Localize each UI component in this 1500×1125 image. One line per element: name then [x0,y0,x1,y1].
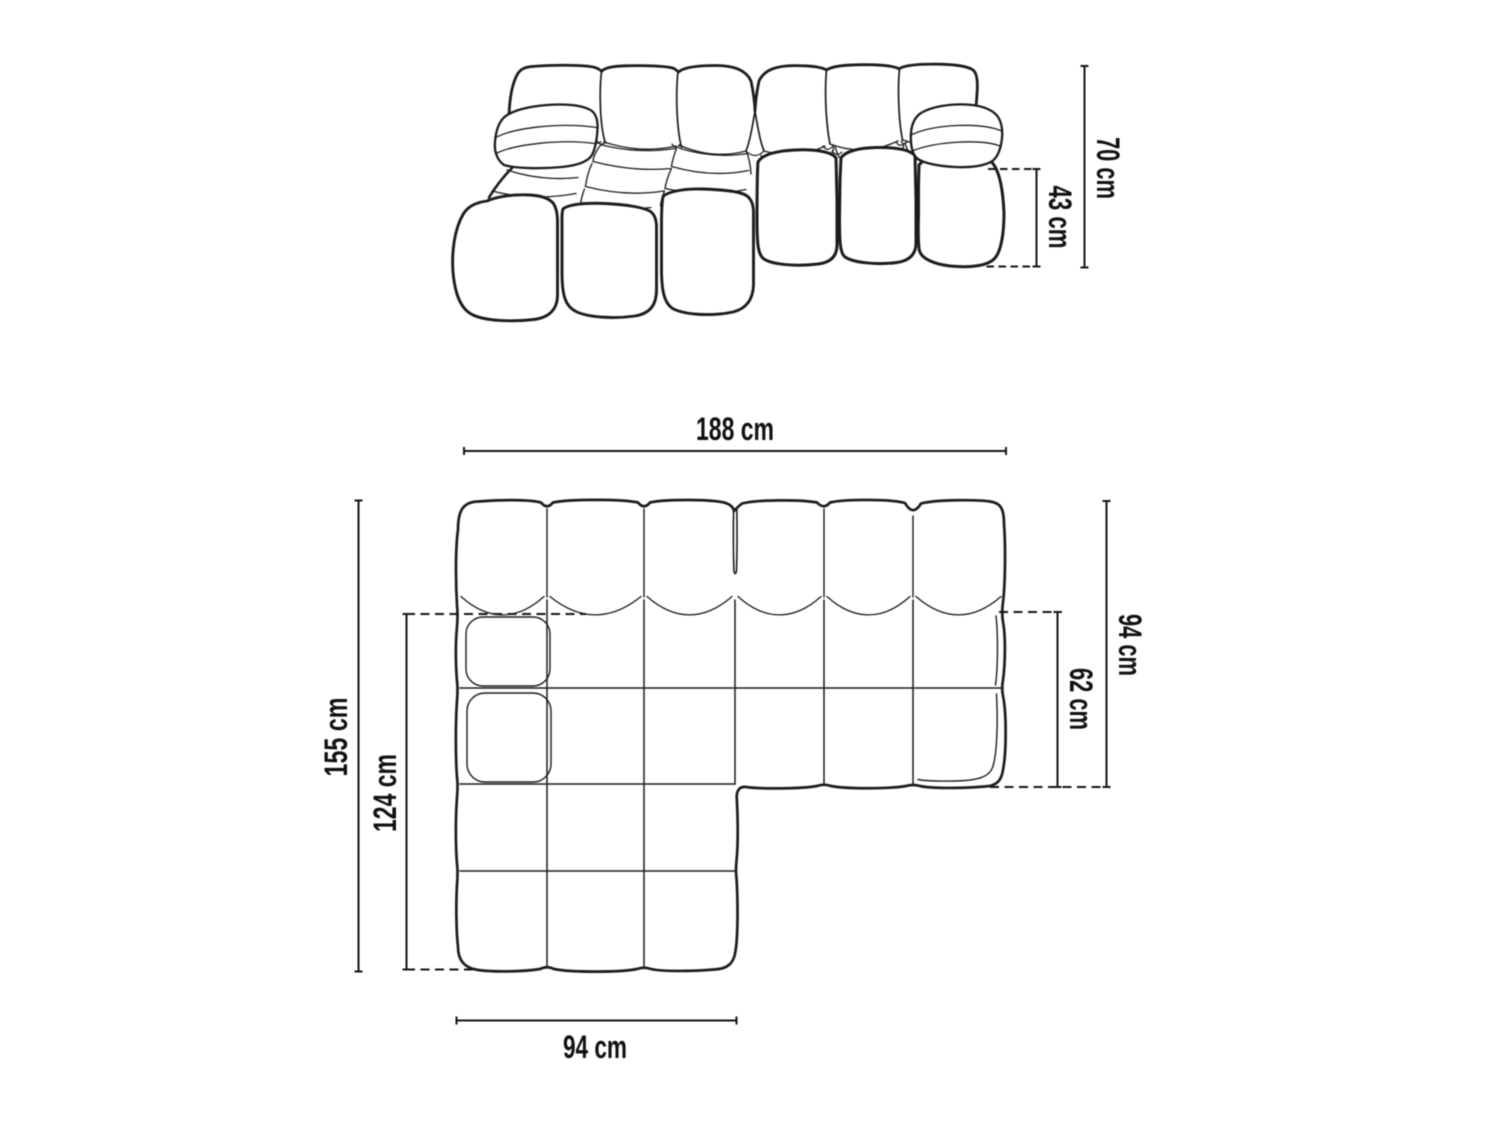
svg-text:155 cm: 155 cm [318,698,354,777]
svg-text:43 cm: 43 cm [1042,186,1078,249]
svg-text:94 cm: 94 cm [1112,614,1148,676]
svg-text:188 cm: 188 cm [696,411,774,447]
svg-text:94 cm: 94 cm [563,1029,627,1065]
svg-text:62 cm: 62 cm [1063,668,1099,730]
svg-text:70 cm: 70 cm [1090,137,1126,199]
svg-text:124 cm: 124 cm [367,754,403,832]
